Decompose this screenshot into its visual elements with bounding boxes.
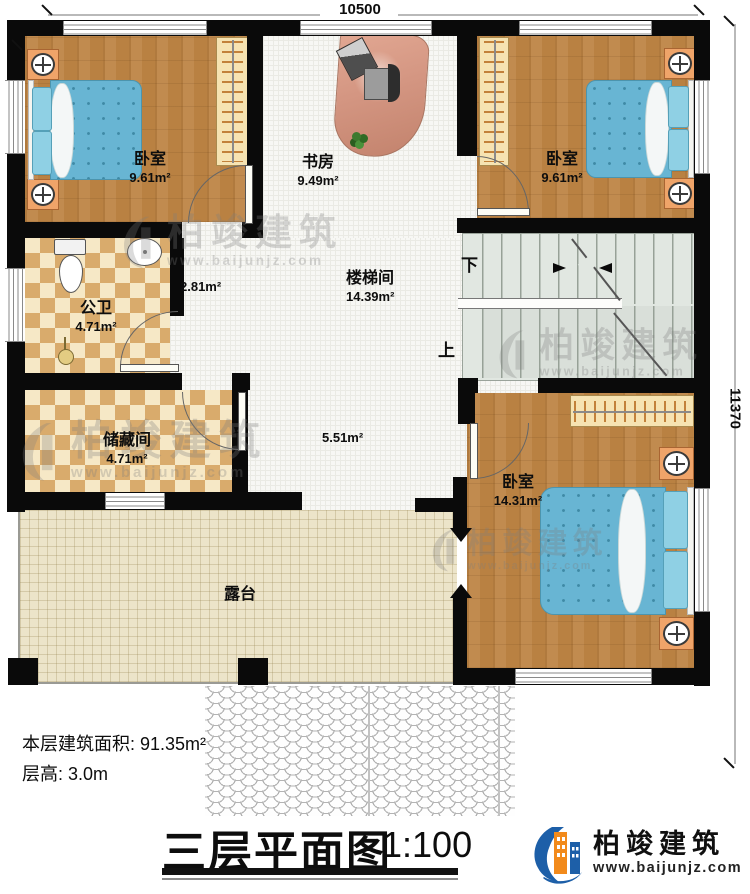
company-logo-site: www.baijunjz.com (593, 860, 742, 876)
company-logo-brand: 柏竣建筑 (593, 831, 742, 858)
door-leaf (238, 392, 246, 451)
nightstand-lamp-icon (27, 49, 59, 80)
door-leaf (470, 423, 478, 479)
window (105, 493, 165, 509)
stair-arrow-icon (599, 263, 612, 273)
floor-height-note: 层高: 3.0m (22, 760, 108, 786)
stairs-down-label: 下 (461, 251, 478, 276)
dimension-tick (723, 757, 734, 768)
roof-line (368, 686, 370, 816)
sink-icon (127, 238, 162, 266)
room-label-study: 书房9.49m² (258, 154, 378, 188)
wall (7, 222, 182, 238)
nightstand-lamp-icon (27, 179, 59, 210)
wall (170, 238, 184, 316)
top-dimension-label: 10500 (322, 1, 398, 18)
room-label-storage: 储藏间4.71m² (67, 432, 187, 466)
pillow (32, 131, 52, 175)
room-label-stairwell: 楼梯间14.39m² (346, 270, 436, 304)
pillow (663, 491, 688, 549)
room-label-bathroom: 公卫4.71m² (36, 300, 156, 334)
terrace-door-arrow-icon (450, 584, 472, 598)
window (695, 80, 710, 174)
bed-headboard (687, 487, 694, 615)
pillow (32, 87, 52, 131)
nightstand-lamp-icon (664, 178, 696, 209)
pillow (668, 86, 689, 128)
title-underline-thin (162, 878, 458, 880)
top-dimension-line (398, 14, 698, 16)
toilet-icon (54, 239, 86, 255)
terrace-pillar (238, 658, 268, 685)
roof-line (498, 686, 500, 816)
roof-tiles (205, 686, 515, 816)
wardrobe-rail (232, 40, 234, 163)
window (515, 669, 652, 684)
room-label-bedroom-tl: 卧室9.61m² (90, 151, 210, 185)
stairs-up-label: 上 (438, 336, 455, 361)
wardrobe (479, 37, 509, 166)
wardrobe-rail (573, 411, 691, 413)
floor-drain-icon (58, 349, 74, 365)
nightstand-lamp-icon (659, 447, 694, 480)
stair-handrail (458, 298, 622, 309)
window (519, 21, 652, 35)
company-logo-icon (530, 822, 584, 884)
wall (453, 597, 467, 668)
dimension-tick (41, 4, 52, 15)
room-label-bedroom-tr: 卧室9.61m² (502, 151, 622, 185)
terrace-door-arrow-icon (450, 528, 472, 542)
door-leaf (245, 165, 253, 224)
wall (457, 218, 710, 233)
right-dimension-label: 11370 (727, 379, 744, 439)
bed-sheet-fold (618, 489, 646, 613)
nightstand-lamp-icon (664, 48, 696, 79)
pillow (668, 129, 689, 171)
wall (538, 378, 710, 393)
nightstand-lamp-icon (659, 617, 694, 650)
window (63, 21, 207, 35)
wall (458, 378, 475, 424)
window (5, 80, 25, 154)
wardrobe-rail (494, 40, 496, 163)
wardrobe (570, 395, 694, 427)
bed-sheet-fold (50, 83, 74, 178)
dimension-tick (723, 15, 734, 26)
door-leaf (120, 364, 179, 372)
title-underline (162, 868, 458, 875)
area-label-hall: 2.81m² (180, 279, 221, 294)
door-leaf (477, 208, 530, 216)
window (5, 268, 25, 342)
floor-plan-canvas: 10500 11370 (0, 0, 750, 894)
plant-icon (352, 132, 361, 141)
bed-sheet-fold (645, 82, 669, 176)
window (695, 488, 710, 612)
company-logo: 柏竣建筑 www.baijunjz.com (530, 822, 742, 884)
wardrobe (216, 37, 248, 166)
room-label-bedroom-br: 卧室14.31m² (458, 474, 578, 508)
top-dimension-line (48, 14, 320, 16)
terrace-pillar (8, 658, 38, 685)
stair-treads-lower (482, 306, 694, 378)
room-label-terrace: 露台 (190, 586, 290, 605)
window (300, 21, 432, 35)
floor-area-note: 本层建筑面积: 91.35m² (22, 730, 206, 756)
pillow (663, 551, 688, 609)
wall (7, 373, 182, 390)
wall (457, 20, 477, 156)
chair-back (388, 64, 400, 102)
drawing-scale: 1:100 (382, 824, 472, 866)
area-label-corridor: 5.51m² (322, 430, 363, 445)
stair-arrow-icon (553, 263, 566, 273)
